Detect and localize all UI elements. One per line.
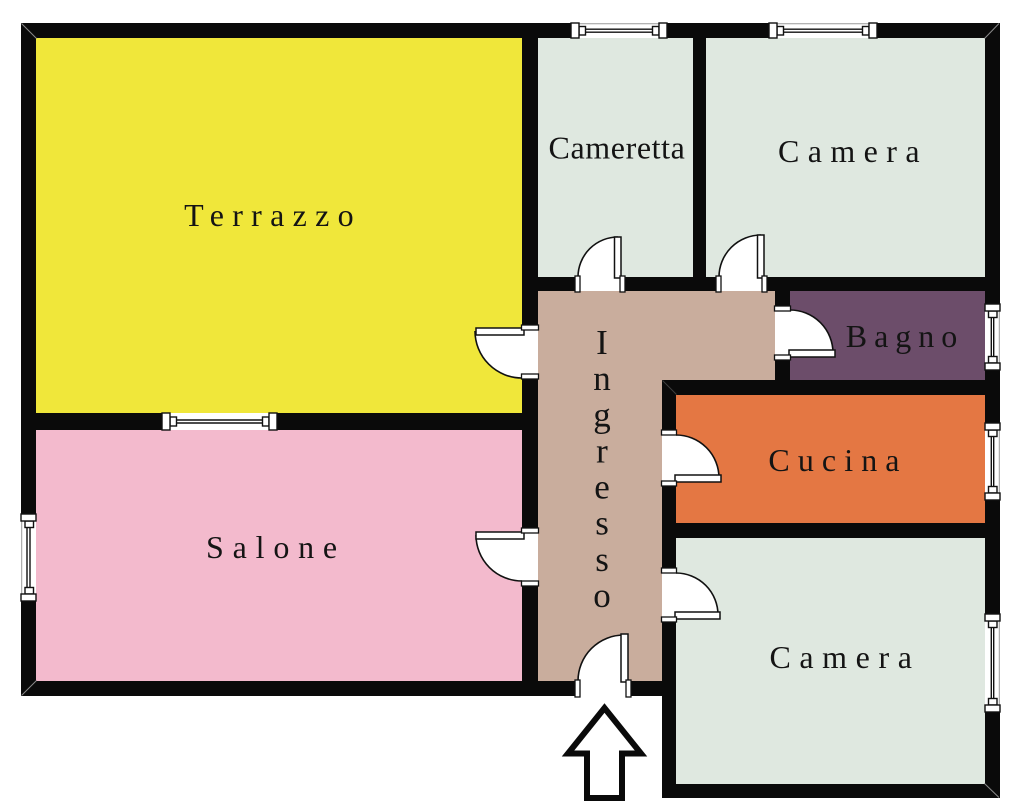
svg-text:I: I	[596, 323, 608, 362]
svg-text:Cucina: Cucina	[768, 442, 907, 478]
svg-text:o: o	[593, 576, 611, 615]
svg-text:s: s	[595, 504, 609, 543]
svg-text:Terrazzo: Terrazzo	[184, 197, 362, 233]
svg-text:Salone: Salone	[206, 529, 346, 565]
svg-text:Bagno: Bagno	[846, 318, 965, 354]
svg-text:r: r	[596, 431, 608, 470]
svg-text:Camera: Camera	[778, 133, 928, 169]
svg-text:s: s	[595, 540, 609, 579]
svg-text:Cameretta: Cameretta	[549, 130, 686, 166]
svg-text:g: g	[593, 395, 611, 434]
svg-text:Camera: Camera	[769, 639, 920, 675]
svg-text:e: e	[594, 468, 610, 507]
svg-text:n: n	[593, 359, 611, 398]
